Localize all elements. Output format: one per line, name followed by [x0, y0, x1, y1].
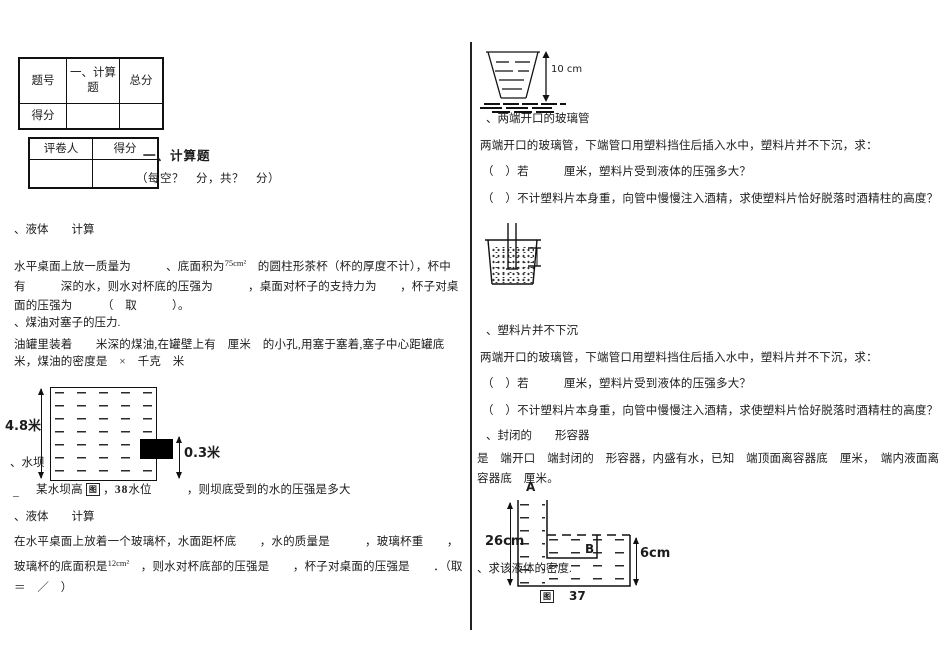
image-placeholder-icon: 图 — [86, 483, 100, 496]
q1-label: 、液体 计算 — [14, 221, 95, 237]
figure-number: 37 — [569, 589, 586, 603]
plug-height-label: 0.3米 — [183, 442, 221, 461]
q2-text: 油罐里装着 米深的煤油,在罐壁上有 厘米 的小孔,用塞于塞着,塞子中心距罐底 米… — [14, 337, 466, 371]
q7-label: 、封闭的 形容器 — [486, 427, 590, 443]
section-title: 一、计算题 — [143, 145, 211, 164]
q3-text: 某水坝高 图 ，38水位 ，则坝底受到的水的压强是多大 — [36, 481, 351, 497]
q6-label: 、塑料片并不下沉 — [486, 322, 578, 338]
q5-part-b: （ ）不计塑料片本身重，向管中慢慢注入酒精，求使塑料片恰好脱落时酒精柱的高度？ — [482, 190, 938, 206]
q5-label: 、两端开口的玻璃管 — [486, 110, 590, 126]
q4-label: 、液体 计算 — [14, 508, 95, 524]
q3-text-post: 水位 ，则坝底受到的水的压强是多大 — [128, 484, 350, 496]
figure-caption: 图 37 — [540, 589, 586, 604]
column-divider — [470, 42, 472, 630]
oil-tank-body — [50, 387, 157, 481]
oil-dashes — [55, 392, 152, 477]
q6-part-a: （ ）若 厘米，塑料片受到液体的压强多大？ — [482, 375, 751, 391]
plug-height-arrow — [179, 437, 180, 478]
cell-total: 总分 — [120, 58, 164, 104]
q3-label: 、水坝 — [10, 454, 45, 470]
score-summary-table: 题号 一、计算题 总分 得分 — [18, 57, 164, 130]
q6-part-b: （ ）不计塑料片本身重，向管中慢慢注入酒精，求使塑料片恰好脱落时酒精柱的高度？ — [482, 402, 938, 418]
cup-diagram: 10 cm — [480, 44, 590, 118]
q8-label: 、求该液体的密度. — [477, 560, 572, 576]
q5-part-a: （ ）若 厘米，塑料片受到液体的压强多大？ — [482, 163, 751, 179]
cell-score-label: 得分 — [19, 104, 67, 130]
cell-score-blank — [67, 104, 120, 130]
cell-section-name: 一、计算题 — [67, 58, 120, 104]
q4-area-superscript: 12cm² — [108, 558, 129, 568]
left-dim-label: 26cm — [485, 534, 524, 549]
q1-text-pre: 水平桌面上放一质量为 、底面积为 — [14, 261, 225, 273]
label-a: A — [526, 480, 535, 494]
figure-icon: 图 — [540, 590, 554, 603]
cup-outline — [480, 44, 580, 118]
table-row: 得分 — [19, 104, 163, 130]
cell-question-no: 题号 — [19, 58, 67, 104]
q3-text-mid: ， — [100, 484, 115, 496]
table-row: 评卷人 得分 — [29, 138, 158, 160]
cell-total-blank — [120, 104, 164, 130]
worksheet-page: 题号 一、计算题 总分 得分 评卷人 得分 一、计算题 （每空？ 分，共？ 分）… — [0, 0, 950, 658]
beaker-outline — [484, 222, 556, 292]
section-note: （每空？ 分，共？ 分） — [136, 170, 280, 186]
right-height-arrow — [636, 538, 637, 585]
tank-height-label: 4.8米 — [5, 415, 41, 434]
q1-text: 水平桌面上放一质量为 、底面积为75cm² 的圆柱形茶杯（杯的厚度不计），杯中有… — [14, 254, 462, 317]
table-row: 题号 一、计算题 总分 — [19, 58, 163, 104]
right-dim-label: 6cm — [640, 546, 670, 561]
q3-text-pre: 某水坝高 — [36, 484, 86, 496]
cell-grader: 评卷人 — [29, 138, 93, 160]
left-margin-underscore: _ — [13, 486, 19, 498]
cup-depth-label: 10 cm — [551, 64, 582, 75]
q6-intro: 两端开口的玻璃管，下端管口用塑料挡住后插入水中，塑料片并不下沉，求： — [480, 349, 878, 365]
cell-grader-blank — [29, 160, 93, 189]
plug-rect — [140, 439, 173, 459]
tube-in-beaker-diagram — [484, 222, 556, 292]
q2-label: 、煤油对塞子的压力. — [14, 314, 120, 330]
q3-figure-number: 38 — [115, 484, 129, 496]
label-b: B — [585, 542, 594, 556]
l-shaped-container-diagram: A B 26cm 6cm 图 37 — [485, 482, 670, 608]
q4-text: 在水平桌面上放着一个玻璃杯，水面距杯底 ，水的质量是 ，玻璃杯重 ，玻璃杯的底面… — [14, 532, 466, 599]
q5-intro: 两端开口的玻璃管，下端管口用塑料挡住后插入水中，塑料片并不下沉，求： — [480, 137, 878, 153]
q1-area-superscript: 75cm² — [225, 258, 246, 268]
